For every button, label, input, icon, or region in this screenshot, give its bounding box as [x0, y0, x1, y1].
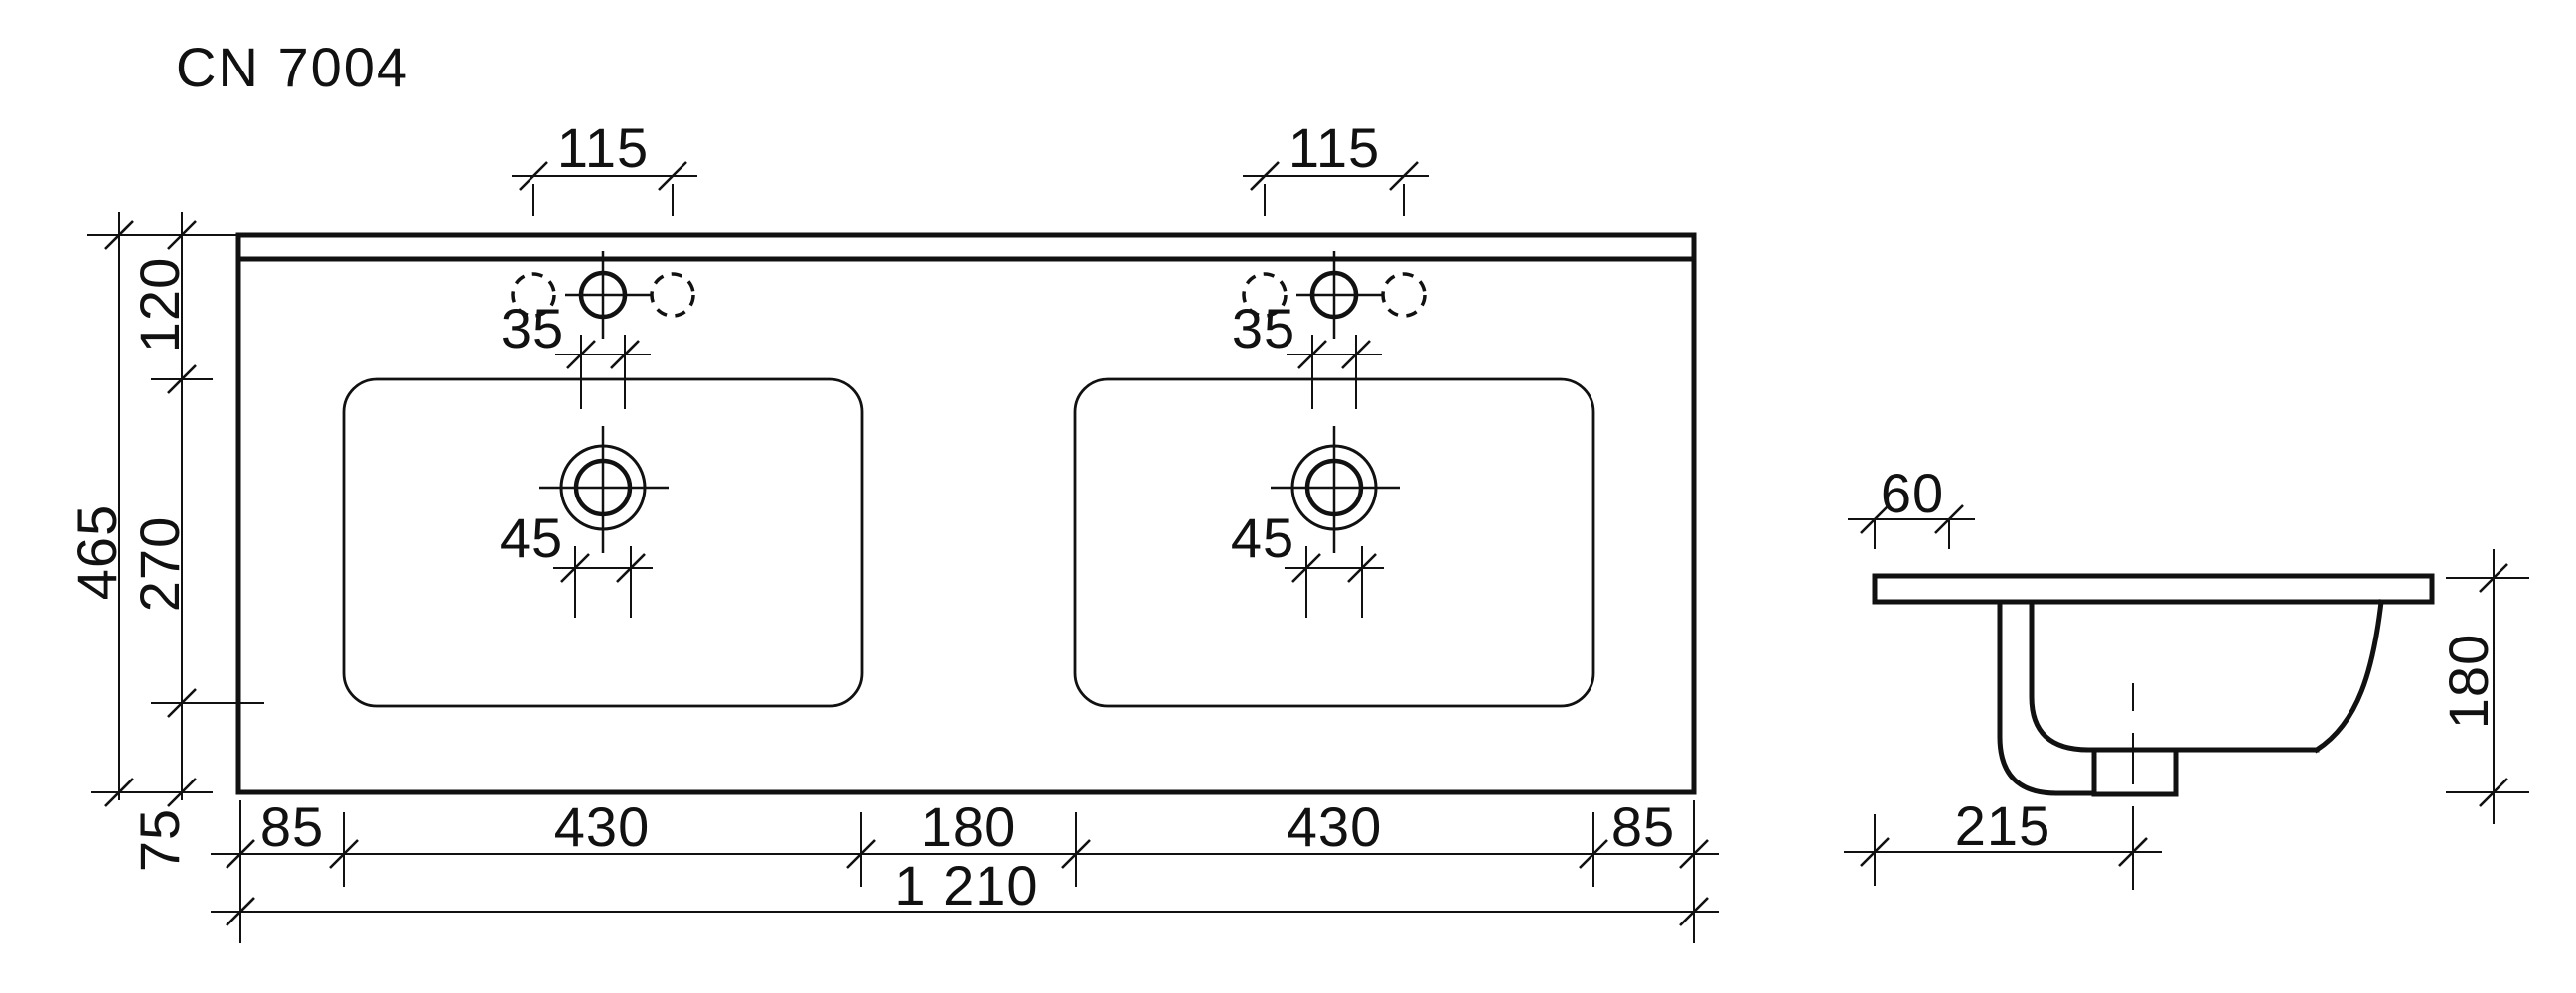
dim-label-drain-from-back: 215 [1955, 794, 2050, 857]
dim-width-chain: 85 430 180 430 85 1 210 [211, 795, 1719, 943]
dim-back-offset: 60 [1848, 462, 1975, 549]
dim-label-basin-depth: 270 [128, 516, 191, 612]
dim-depth-chain: 120 270 465 75 [66, 212, 264, 872]
dim-label-side-margin-left: 85 [260, 795, 324, 858]
vanity-top-outline [238, 235, 1694, 792]
dim-label-edge-to-basin: 120 [128, 257, 191, 353]
dim-label-back-offset: 60 [1881, 462, 1944, 524]
dim-label-hole-spacing-right: 115 [1288, 116, 1380, 179]
side-view: 60 215 180 [1844, 462, 2529, 890]
dim-label-faucet-diameter-left: 35 [501, 297, 564, 359]
dim-overall-height: 180 [2437, 549, 2529, 824]
dim-hole-spacing-right: 115 [1243, 116, 1429, 216]
dim-label-drain-diameter-right: 45 [1231, 506, 1294, 569]
dim-label-basin-gap: 180 [921, 795, 1016, 858]
drain-trap-outline [2094, 750, 2176, 794]
technical-drawing-page: CN 7004 35 [0, 0, 2576, 993]
dim-label-basin-to-front: 75 [128, 808, 191, 872]
dim-label-basin-width-left: 430 [554, 795, 650, 858]
dim-label-overall-height: 180 [2437, 634, 2500, 729]
dim-label-hole-spacing-left: 115 [557, 116, 649, 179]
back-bracket-inner [2032, 602, 2088, 750]
back-bracket-outer [2000, 602, 2094, 793]
dim-label-side-margin-right: 85 [1611, 795, 1675, 858]
dim-label-faucet-diameter-right: 35 [1232, 297, 1295, 359]
dim-label-basin-width-right: 430 [1287, 795, 1382, 858]
countertop-outline [238, 235, 1694, 792]
countertop-side-profile [1875, 576, 2432, 602]
dim-drain-from-back: 215 [1844, 794, 2162, 886]
model-number-label: CN 7004 [176, 36, 409, 98]
dim-hole-spacing-left: 115 [512, 116, 697, 216]
basin-front-curve [2317, 602, 2381, 750]
dim-label-overall-depth: 465 [66, 504, 128, 600]
dim-label-overall-width: 1 210 [894, 854, 1038, 917]
plan-view: 35 35 45 [66, 116, 1719, 943]
dim-label-drain-diameter-left: 45 [500, 506, 563, 569]
drawing-canvas: CN 7004 35 [0, 0, 2576, 993]
